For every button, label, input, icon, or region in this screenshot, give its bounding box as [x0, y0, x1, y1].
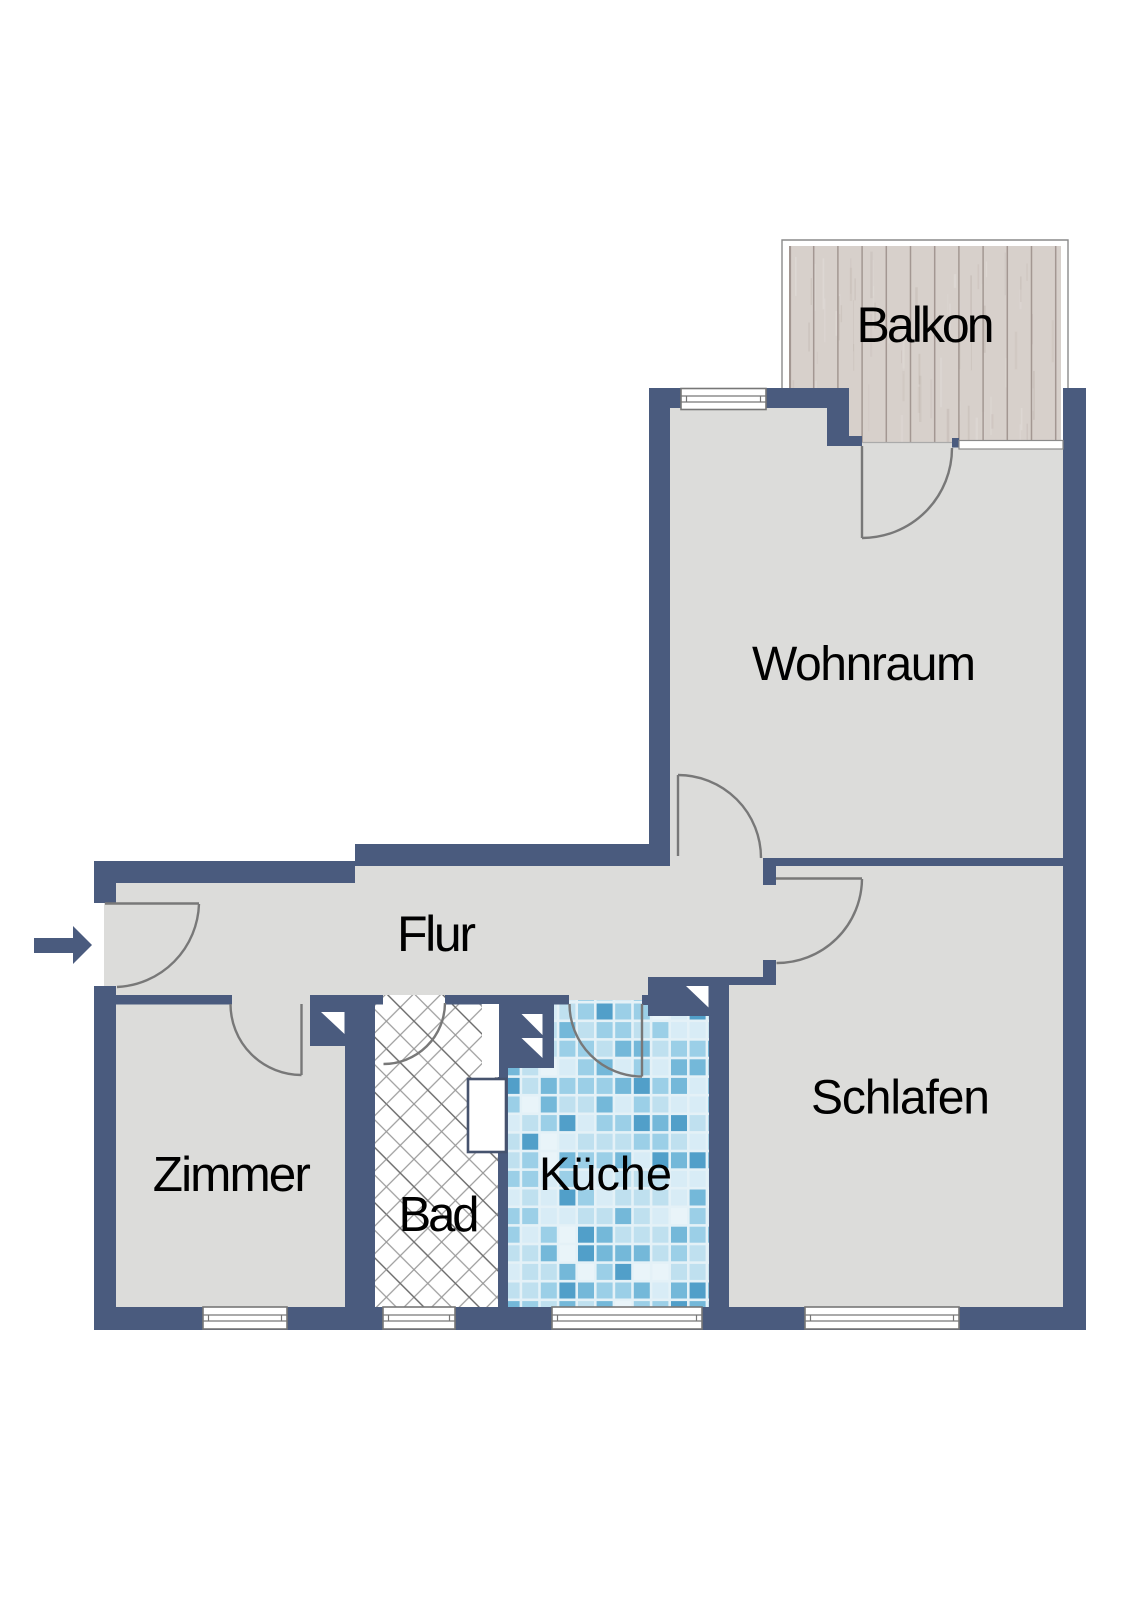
svg-text:Wohnraum: Wohnraum	[752, 638, 976, 691]
svg-text:Zimmer: Zimmer	[153, 1147, 311, 1202]
svg-text:Küche: Küche	[539, 1147, 672, 1200]
svg-text:Flur: Flur	[397, 906, 476, 962]
svg-text:Bad: Bad	[399, 1188, 480, 1242]
svg-text:Schlafen: Schlafen	[811, 1072, 990, 1125]
svg-text:Balkon: Balkon	[857, 297, 995, 353]
